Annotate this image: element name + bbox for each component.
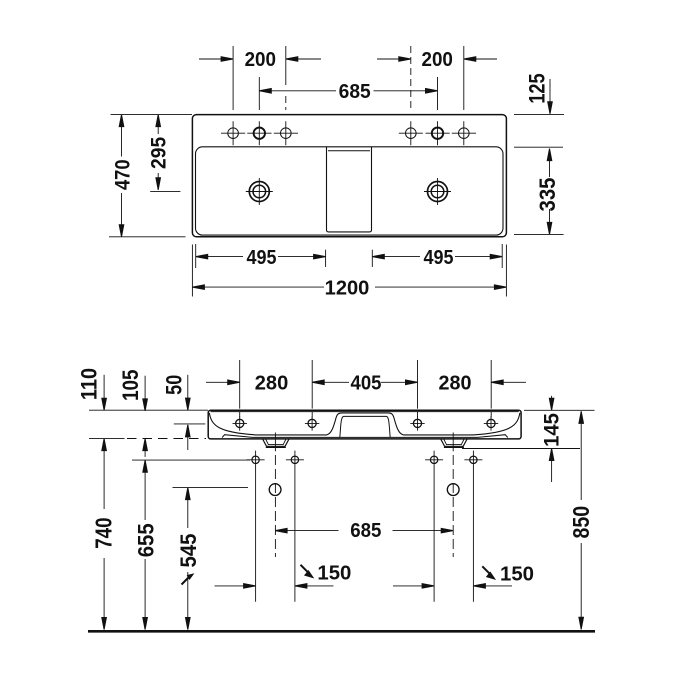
svg-text:200: 200 (245, 49, 276, 71)
svg-text:335: 335 (535, 178, 560, 212)
svg-text:200: 200 (422, 49, 453, 71)
svg-text:150: 150 (500, 564, 534, 586)
svg-text:495: 495 (247, 247, 277, 269)
svg-text:295: 295 (148, 137, 171, 169)
svg-text:50: 50 (161, 375, 186, 395)
svg-text:150: 150 (317, 562, 351, 584)
svg-text:685: 685 (339, 81, 371, 103)
svg-text:740: 740 (90, 517, 116, 548)
svg-text:145: 145 (541, 413, 564, 447)
svg-text:280: 280 (255, 373, 289, 395)
svg-text:470: 470 (111, 159, 134, 190)
svg-text:110: 110 (76, 368, 101, 400)
svg-text:685: 685 (350, 520, 381, 542)
svg-text:1200: 1200 (325, 277, 370, 299)
svg-text:545: 545 (176, 534, 201, 568)
svg-text:405: 405 (351, 373, 382, 395)
svg-text:125: 125 (525, 73, 550, 103)
svg-text:105: 105 (118, 370, 143, 401)
svg-text:655: 655 (133, 523, 158, 557)
svg-text:495: 495 (424, 247, 454, 269)
svg-text:850: 850 (568, 506, 594, 539)
svg-text:280: 280 (439, 373, 472, 395)
